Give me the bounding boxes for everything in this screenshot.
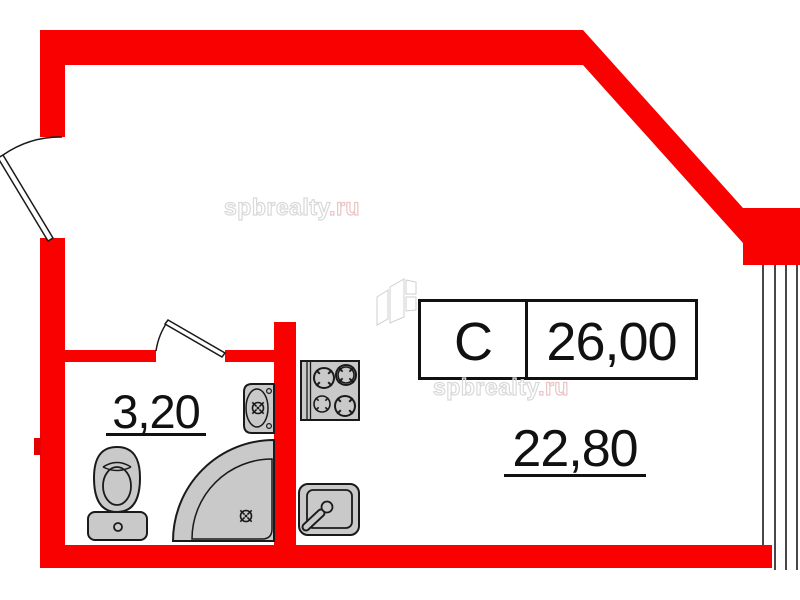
floor-plan: С 26,00 22,80 3,20 spbrealty.ru spbrealt… (0, 0, 800, 600)
watermark-bottom: spbrealty.ru (433, 374, 569, 401)
kitchen-sink-icon (299, 484, 359, 535)
main-room-area-label: 22,80 (504, 424, 646, 477)
bathroom-area-label: 3,20 (106, 390, 206, 436)
unit-label-box: С 26,00 (418, 299, 698, 380)
folding-screen-logo-icon (377, 279, 416, 325)
wall-partition (274, 322, 296, 545)
unit-type-cell: С (421, 302, 528, 377)
entrance-door-icon (0, 137, 62, 241)
shower-tray-icon (173, 440, 274, 541)
toilet-icon (88, 447, 147, 540)
stove-icon (301, 361, 359, 420)
unit-type-code: С (454, 311, 492, 373)
wall-bottom (40, 545, 772, 568)
wall-bathroom-top-left (65, 350, 156, 362)
wall-corner-block (743, 208, 800, 265)
watermark-suffix: .ru (329, 194, 360, 220)
bathroom-sink-icon (244, 384, 274, 433)
watermark-text: spbrealty (433, 374, 538, 400)
watermark-top: spbrealty.ru (224, 194, 360, 221)
wall-left-notch (34, 438, 41, 455)
watermark-text: spbrealty (224, 194, 329, 220)
bathroom-door-icon (156, 320, 225, 357)
window-icon (763, 265, 797, 570)
wall-left-lower (40, 238, 65, 568)
unit-area-cell: 26,00 (528, 302, 695, 377)
wall-diagonal (583, 30, 743, 243)
unit-total-area: 26,00 (546, 311, 676, 373)
wall-top (40, 30, 583, 65)
wall-left-upper (40, 30, 65, 137)
watermark-suffix: .ru (538, 374, 569, 400)
